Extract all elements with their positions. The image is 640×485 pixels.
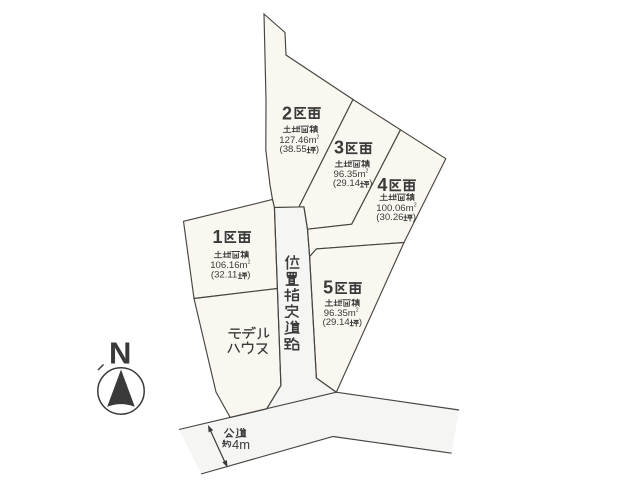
svg-text:): ) (247, 270, 250, 281)
svg-text:4: 4 (377, 175, 387, 195)
svg-text:5: 5 (323, 278, 333, 298)
svg-text:2: 2 (356, 308, 359, 314)
svg-text:(29.14: (29.14 (323, 317, 351, 328)
svg-text:2: 2 (248, 260, 251, 266)
svg-text:(29.14: (29.14 (333, 178, 361, 189)
svg-text:): ) (369, 178, 372, 189)
svg-text:2: 2 (282, 103, 292, 123)
svg-text:3: 3 (334, 138, 344, 158)
svg-text:2: 2 (366, 169, 369, 175)
svg-text:N: N (109, 336, 131, 371)
svg-text:4m: 4m (232, 437, 250, 452)
svg-text:): ) (316, 144, 319, 155)
svg-text:2: 2 (317, 135, 320, 141)
svg-text:): ) (413, 212, 416, 223)
svg-text:(30.26: (30.26 (376, 212, 403, 223)
svg-text:1: 1 (213, 227, 223, 247)
svg-text:(32.11: (32.11 (211, 270, 238, 281)
svg-text:2: 2 (414, 202, 417, 208)
svg-text:): ) (359, 317, 362, 328)
svg-text:(38.55: (38.55 (280, 144, 307, 155)
